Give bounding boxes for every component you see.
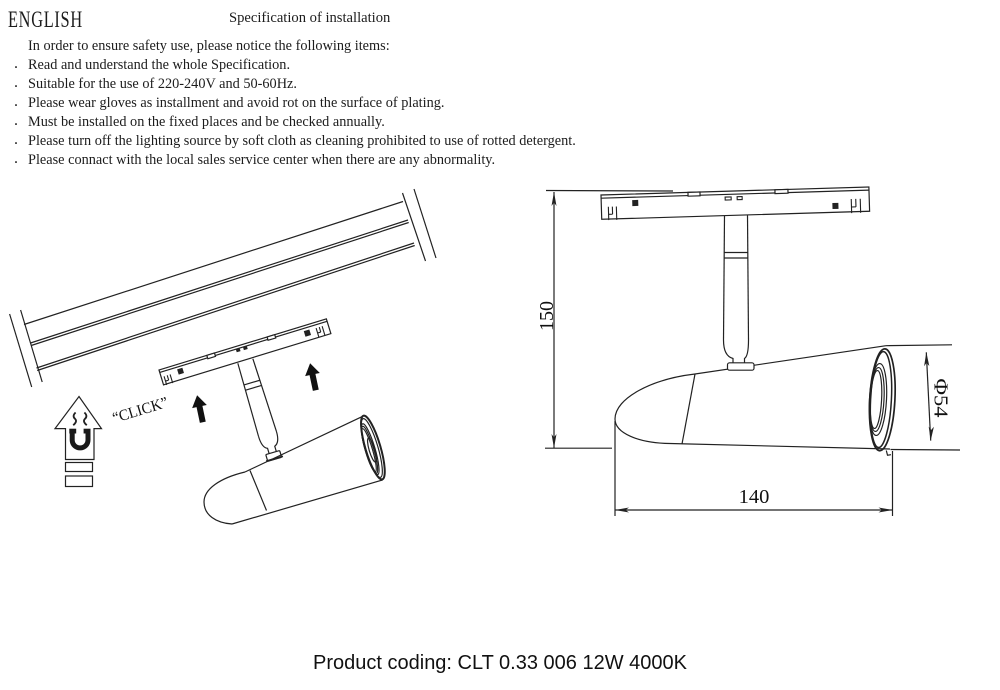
svg-text:150: 150 <box>536 301 558 331</box>
svg-text:Φ54: Φ54 <box>930 379 952 418</box>
svg-text:140: 140 <box>739 486 770 508</box>
svg-text:“CLICK”: “CLICK” <box>111 394 171 427</box>
